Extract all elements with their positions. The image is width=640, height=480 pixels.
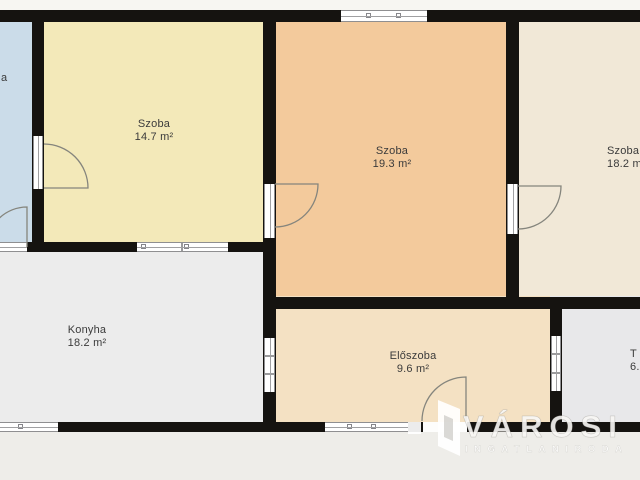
room-area: 6.: [630, 361, 640, 374]
room-name: Szoba: [104, 118, 204, 131]
room-name: a: [1, 72, 15, 85]
room-name: Előszoba: [363, 350, 463, 363]
door-arc-blue-to-yellow: [44, 144, 88, 188]
watermark-tagline-text: INGATLANIRODA: [465, 444, 628, 455]
watermark-brand-text: VÁROSI: [463, 409, 624, 445]
room-area: 19.3 m²: [342, 158, 442, 171]
door-swing-arcs: [0, 0, 640, 480]
room-label-blue-partial: a: [1, 72, 15, 85]
room-area: 18.2 m²: [37, 337, 137, 350]
room-name: Szoba: [342, 145, 442, 158]
room-name: T: [630, 348, 640, 361]
door-arc-yellow-to-orange: [275, 184, 318, 227]
room-area: 18.2 m²: [607, 158, 640, 171]
watermark-logo-square: [408, 422, 421, 434]
door-arc-blue-room: [0, 207, 27, 247]
room-area: 9.6 m²: [363, 363, 463, 376]
room-label-eloszoba: Előszoba 9.6 m²: [363, 350, 463, 375]
room-name: Konyha: [37, 324, 137, 337]
room-label-szoba-3: Szoba 18.2 m²: [607, 145, 640, 170]
room-label-szoba-2: Szoba 19.3 m²: [342, 145, 442, 170]
room-label-konyha: Konyha 18.2 m²: [37, 324, 137, 349]
room-area: 14.7 m²: [104, 131, 204, 144]
watermark-logo-icon: [434, 396, 464, 460]
room-label-szoba-1: Szoba 14.7 m²: [104, 118, 204, 143]
room-name: Szoba: [607, 145, 640, 158]
room-label-storage-partial: T 6.: [630, 348, 640, 373]
floorplan-canvas: Szoba 14.7 m² Szoba 19.3 m² Szoba 18.2 m…: [0, 0, 640, 480]
door-arc-orange-to-beige: [518, 186, 561, 229]
